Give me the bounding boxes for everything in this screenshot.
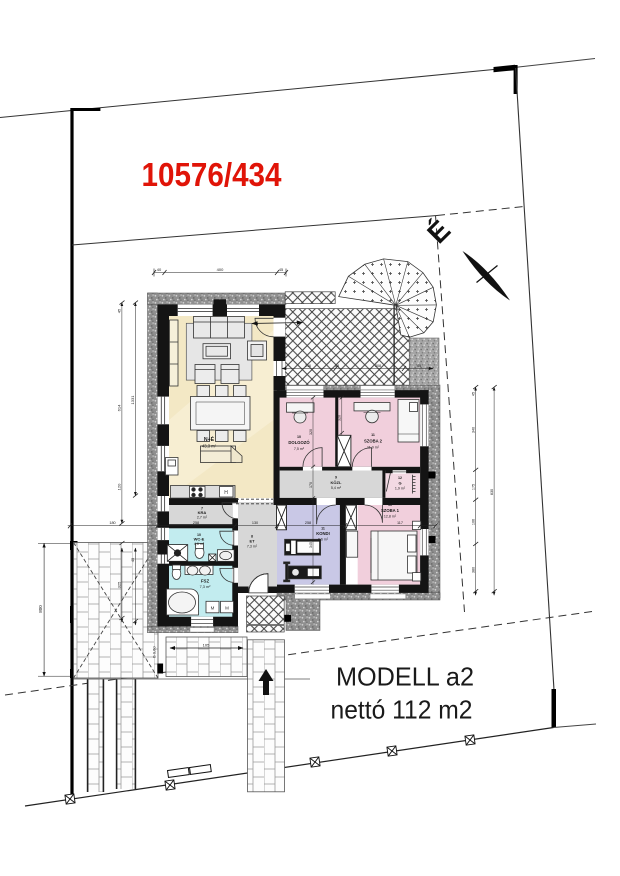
svg-text:12: 12 xyxy=(398,476,402,480)
svg-text:45: 45 xyxy=(279,267,284,272)
svg-text:9: 9 xyxy=(335,476,337,480)
svg-text:345: 345 xyxy=(309,542,313,548)
svg-text:1,9 m²: 1,9 m² xyxy=(395,487,406,491)
svg-text:10576/434: 10576/434 xyxy=(142,156,283,193)
svg-text:FSZ: FSZ xyxy=(201,579,210,584)
svg-text:340: 340 xyxy=(471,427,475,433)
svg-text:7,3 m²: 7,3 m² xyxy=(200,585,211,589)
svg-text:M: M xyxy=(225,606,229,611)
svg-text:380: 380 xyxy=(471,567,475,573)
svg-text:800: 800 xyxy=(38,605,43,613)
svg-text:B 0,60: B 0,60 xyxy=(152,646,157,658)
svg-text:45: 45 xyxy=(471,392,475,396)
svg-text:9,6 m²: 9,6 m² xyxy=(318,538,329,542)
svg-text:7,5 m²: 7,5 m² xyxy=(294,447,305,451)
svg-text:40: 40 xyxy=(157,267,162,272)
svg-text:18: 18 xyxy=(335,364,339,368)
svg-text:G: G xyxy=(398,481,401,486)
svg-text:120: 120 xyxy=(116,483,121,490)
svg-text:7,3 m²: 7,3 m² xyxy=(247,545,258,549)
svg-text:N+É: N+É xyxy=(204,435,215,443)
svg-text:258: 258 xyxy=(305,521,311,525)
svg-text:10: 10 xyxy=(297,435,301,439)
svg-text:105: 105 xyxy=(203,643,210,648)
svg-text:4,6 m²: 4,6 m² xyxy=(194,542,205,546)
svg-text:ET: ET xyxy=(249,539,255,544)
svg-text:2,7 m²: 2,7 m² xyxy=(197,516,208,520)
svg-text:10: 10 xyxy=(388,503,392,507)
svg-text:130: 130 xyxy=(252,521,258,525)
svg-text:SZOBA 1: SZOBA 1 xyxy=(381,508,400,513)
svg-text:1331: 1331 xyxy=(130,395,135,405)
svg-text:43,3 m²: 43,3 m² xyxy=(202,444,217,449)
svg-text:614: 614 xyxy=(116,404,121,411)
svg-text:180: 180 xyxy=(109,521,115,525)
svg-text:11: 11 xyxy=(371,433,375,437)
svg-text:M: M xyxy=(211,606,215,611)
svg-text:308: 308 xyxy=(375,364,381,368)
svg-text:11,9 m²: 11,9 m² xyxy=(367,446,380,450)
svg-text:258: 258 xyxy=(193,521,199,525)
svg-text:170: 170 xyxy=(309,482,313,488)
svg-text:H: H xyxy=(224,490,228,496)
svg-text:5,4 m²: 5,4 m² xyxy=(331,486,342,490)
svg-text:DOLGOZÓ: DOLGOZÓ xyxy=(288,440,310,445)
svg-text:320: 320 xyxy=(309,429,313,435)
svg-text:45: 45 xyxy=(116,308,121,313)
svg-text:MODELL a2: MODELL a2 xyxy=(336,662,474,692)
svg-text:45: 45 xyxy=(417,364,421,368)
svg-text:WC-E: WC-E xyxy=(194,537,205,542)
svg-text:175: 175 xyxy=(471,484,475,490)
svg-text:KONDI: KONDI xyxy=(316,531,330,536)
svg-text:KÖZL: KÖZL xyxy=(331,480,342,485)
svg-text:SZOBA 2: SZOBA 2 xyxy=(364,439,383,444)
svg-text:KRA: KRA xyxy=(198,510,207,515)
svg-text:320: 320 xyxy=(338,415,342,421)
svg-text:nettó 112 m2: nettó 112 m2 xyxy=(331,695,473,725)
svg-text:106: 106 xyxy=(471,519,475,525)
svg-text:117: 117 xyxy=(397,521,403,525)
svg-text:216: 216 xyxy=(305,364,311,368)
svg-text:45: 45 xyxy=(130,557,135,562)
svg-text:11: 11 xyxy=(321,527,325,531)
svg-text:325: 325 xyxy=(116,581,121,588)
svg-text:830: 830 xyxy=(490,489,494,495)
svg-text:400: 400 xyxy=(217,267,224,272)
svg-text:12,8 m²: 12,8 m² xyxy=(384,515,397,519)
